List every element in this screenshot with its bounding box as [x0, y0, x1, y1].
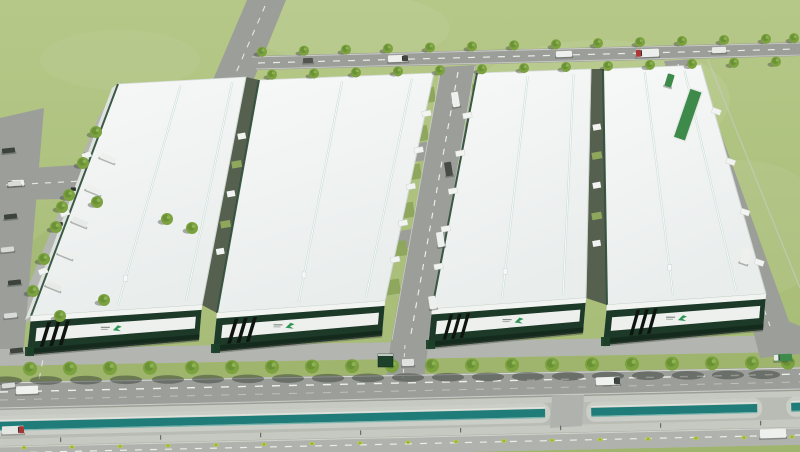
truck — [387, 55, 409, 64]
truck-body — [16, 386, 38, 395]
tree-canopy-highlight — [566, 64, 569, 67]
tree-canopy-highlight — [632, 360, 636, 364]
tree-canopy-highlight — [734, 60, 737, 63]
tree-shadow — [30, 376, 62, 385]
industrial-park-scene — [0, 0, 800, 452]
bush-core — [791, 436, 793, 438]
truck-cab — [774, 355, 779, 361]
truck-windshield — [641, 50, 642, 56]
truck-body — [402, 359, 414, 366]
median-gap-crossing — [550, 394, 584, 428]
bush-core — [23, 447, 25, 449]
logo-text-mark — [274, 326, 281, 327]
tree-canopy-highlight — [724, 37, 727, 40]
bush-core — [311, 443, 313, 445]
logo-text-mark — [101, 327, 110, 328]
tree-canopy-highlight — [192, 363, 196, 367]
tree-canopy-highlight — [398, 68, 401, 71]
tree-canopy-highlight — [472, 43, 475, 46]
truck — [711, 47, 727, 55]
tree-shadow — [110, 375, 142, 384]
bush-core — [215, 444, 217, 446]
bush-core — [71, 446, 73, 448]
tree-canopy-highlight — [304, 48, 307, 51]
roof-vent — [668, 265, 672, 271]
tree-canopy-highlight — [482, 66, 485, 69]
tree-canopy-highlight — [312, 362, 316, 366]
tree-canopy-highlight — [62, 203, 66, 207]
lamp-post — [560, 426, 561, 431]
truck-windshield — [778, 355, 779, 360]
bush-core — [119, 445, 121, 447]
lamp-post — [260, 433, 261, 438]
truck-cab — [403, 55, 408, 61]
logo-text-mark — [503, 319, 512, 320]
tree-canopy-highlight — [608, 63, 611, 66]
tree-canopy-highlight — [766, 36, 769, 39]
tree-shadow — [232, 374, 264, 383]
tree-canopy-highlight — [356, 69, 359, 72]
tree-shadow — [432, 373, 464, 382]
tree-shadow — [312, 374, 344, 383]
truck-body — [303, 58, 313, 63]
tree-canopy-highlight — [552, 360, 556, 364]
tree-shadow — [672, 371, 704, 380]
tree-shadow — [352, 374, 384, 383]
lamp-post — [60, 438, 61, 443]
bush-core — [695, 437, 697, 439]
tree-shadow — [152, 375, 184, 384]
roof-vent — [302, 272, 306, 278]
tree-canopy-highlight — [56, 223, 60, 227]
logo-text-mark — [101, 329, 108, 330]
lamp-post — [660, 423, 661, 428]
tree-shadow — [512, 372, 544, 381]
tree-canopy-highlight — [192, 224, 196, 228]
truck-cab — [636, 50, 641, 57]
roof-vent — [124, 275, 128, 281]
tree-canopy-highlight — [272, 363, 276, 367]
tree-canopy-highlight — [682, 38, 685, 41]
bush-core — [743, 437, 745, 439]
tree-canopy-highlight — [472, 361, 476, 365]
lamp-post — [160, 435, 161, 440]
tree-canopy-highlight — [83, 159, 87, 163]
tree-canopy-highlight — [640, 39, 643, 42]
tree-canopy-highlight — [512, 361, 516, 365]
truck-body — [556, 51, 572, 58]
tree-canopy-highlight — [598, 40, 601, 43]
tree-canopy-highlight — [692, 61, 695, 64]
tree-canopy-highlight — [712, 359, 716, 363]
tree-canopy-highlight — [60, 312, 64, 316]
truck — [759, 429, 787, 440]
bush-core — [599, 439, 601, 441]
logo-text-mark — [503, 321, 510, 322]
lamp-post — [760, 421, 761, 426]
truck-cab — [19, 426, 24, 433]
canal-water — [791, 402, 800, 411]
tree-canopy-highlight — [167, 215, 171, 219]
tree-canopy-highlight — [272, 72, 275, 75]
bush-core — [263, 443, 265, 445]
roof-vent — [503, 268, 507, 274]
tree-canopy-highlight — [650, 62, 653, 65]
tree-canopy-highlight — [96, 128, 100, 132]
entrance-canopy — [426, 340, 435, 349]
truck-windshield — [614, 378, 615, 384]
tree-canopy-highlight — [346, 47, 349, 50]
bush-core — [455, 441, 457, 443]
tree-canopy-highlight — [104, 296, 108, 300]
truck — [302, 58, 314, 65]
tree-shadow — [70, 376, 102, 385]
tree-canopy-highlight — [430, 44, 433, 47]
logo-text-mark — [666, 319, 673, 320]
truck-windshield — [402, 56, 403, 61]
bush-core — [407, 441, 409, 443]
truck-cab — [615, 377, 620, 384]
bush-core — [647, 438, 649, 440]
tree-shadow — [748, 370, 780, 379]
logo-text-mark — [666, 317, 675, 318]
tree-canopy-highlight — [514, 42, 517, 45]
tree-shadow — [712, 371, 744, 380]
tree-canopy-highlight — [440, 67, 443, 70]
tree-canopy-highlight — [672, 359, 676, 363]
tree-canopy-highlight — [70, 364, 74, 368]
truck-windshield — [18, 427, 19, 433]
tree-shadow — [632, 371, 664, 380]
truck — [555, 51, 573, 59]
tree-shadow — [392, 373, 424, 382]
tree-canopy-highlight — [110, 364, 114, 368]
tree-shadow — [272, 374, 304, 383]
tree-canopy-highlight — [150, 364, 154, 368]
guardhouse-roof-edge — [378, 354, 393, 356]
tree-shadow — [192, 375, 224, 384]
truck-body — [712, 47, 726, 53]
bush-core — [503, 440, 505, 442]
bush-core — [167, 445, 169, 447]
tree-canopy-highlight — [352, 362, 356, 366]
tree-canopy-highlight — [262, 49, 265, 52]
entrance-canopy — [601, 337, 610, 346]
tree-canopy-highlight — [794, 35, 797, 38]
tree-canopy-highlight — [556, 41, 559, 44]
truck — [773, 354, 793, 363]
tree-canopy-highlight — [232, 363, 236, 367]
tree-canopy-highlight — [752, 359, 756, 363]
tree-canopy-highlight — [776, 59, 779, 62]
bush-core — [359, 442, 361, 444]
tree-canopy-highlight — [44, 255, 48, 259]
truck-body — [760, 429, 786, 439]
logo-text-mark — [274, 324, 283, 325]
truck — [1, 426, 25, 436]
truck — [595, 377, 621, 387]
entrance-canopy — [25, 347, 34, 356]
tree-canopy-highlight — [30, 365, 34, 369]
aerial-render-image — [0, 0, 800, 452]
bush-core — [551, 439, 553, 441]
tree-canopy-highlight — [314, 71, 317, 74]
truck — [401, 359, 415, 368]
entrance-canopy — [211, 344, 220, 353]
tree-shadow — [472, 373, 504, 382]
tree-canopy-highlight — [69, 191, 73, 195]
tree-canopy-highlight — [592, 360, 596, 364]
truck — [635, 49, 660, 59]
tree-canopy-highlight — [388, 46, 391, 49]
tree-canopy-highlight — [97, 198, 101, 202]
tree-canopy-highlight — [524, 65, 527, 68]
tree-shadow — [552, 372, 584, 381]
truck — [15, 386, 39, 396]
tree-canopy-highlight — [33, 287, 37, 291]
tree-canopy-highlight — [432, 361, 436, 365]
lamp-post — [360, 430, 361, 435]
lamp-post — [460, 428, 461, 433]
